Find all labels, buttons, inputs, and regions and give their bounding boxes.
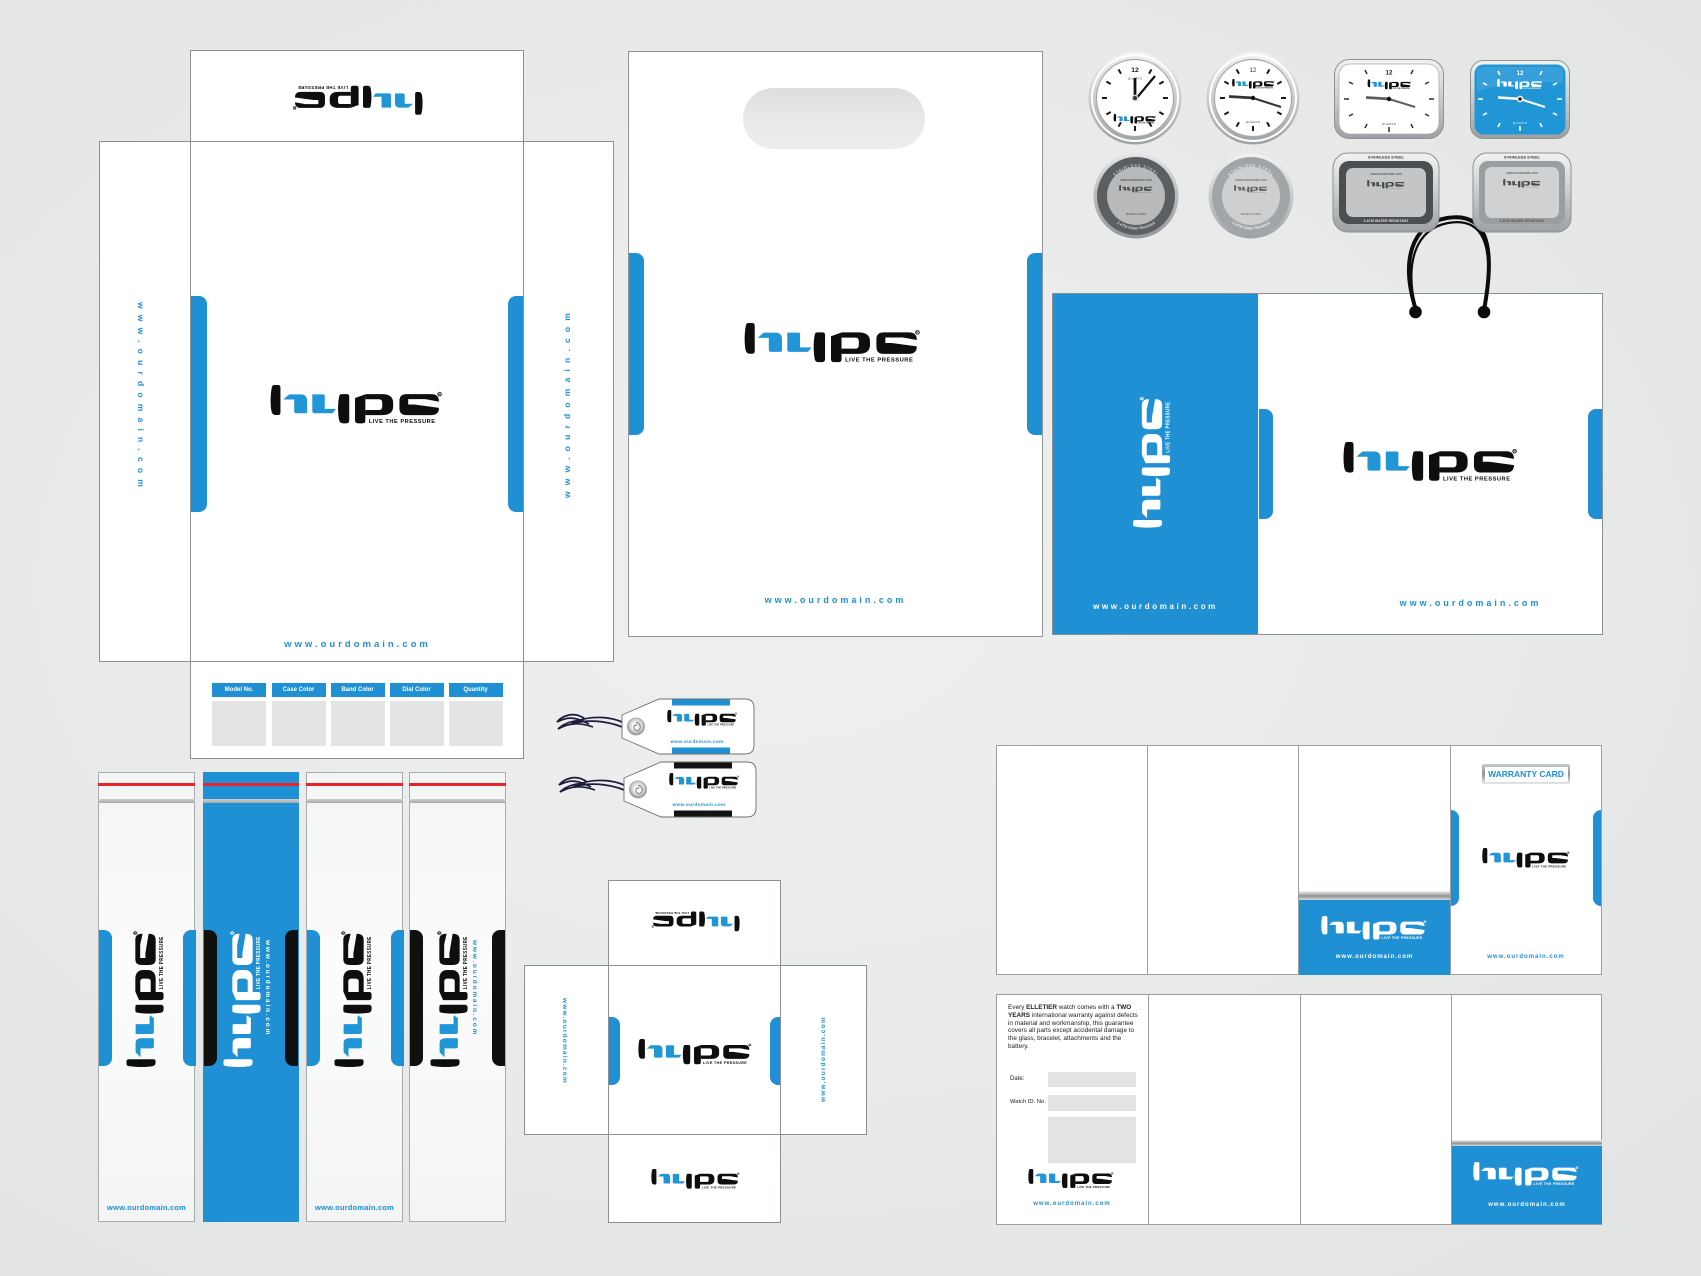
svg-text:12: 12 [1386,70,1393,77]
svg-text:MADE IN CHINA: MADE IN CHINA [1241,212,1262,216]
svg-text:QUARTZ: QUARTZ [1382,122,1396,126]
svg-text:STAINLESS STEEL: STAINLESS STEEL [1504,155,1541,160]
svg-text:www.ourdomain.com: www.ourdomain.com [1370,172,1402,176]
svg-text:12: 12 [1131,67,1139,74]
svg-text:3 ATM WATER RESISTANT: 3 ATM WATER RESISTANT [1363,219,1409,223]
svg-text:3 ATM WATER RESISTANT: 3 ATM WATER RESISTANT [1499,219,1545,223]
svg-text:12: 12 [1250,68,1257,74]
svg-text:MADE IN CHINA: MADE IN CHINA [1126,212,1147,216]
svg-text:www.ourdomain.com: www.ourdomain.com [1506,171,1538,175]
svg-text:QUARTZ: QUARTZ [1513,121,1527,125]
svg-text:www.ourdomain.com: www.ourdomain.com [1235,178,1267,182]
svg-text:QUARTZ: QUARTZ [1246,120,1260,124]
svg-text:www.ourdomain.com: www.ourdomain.com [1120,178,1152,182]
svg-text:STAINLESS STEEL: STAINLESS STEEL [1368,155,1405,160]
svg-text:www.ourdomain.com: www.ourdomain.com [671,802,725,807]
svg-text:12: 12 [1517,71,1524,77]
svg-text:www.ourdomain.com: www.ourdomain.com [669,739,723,744]
